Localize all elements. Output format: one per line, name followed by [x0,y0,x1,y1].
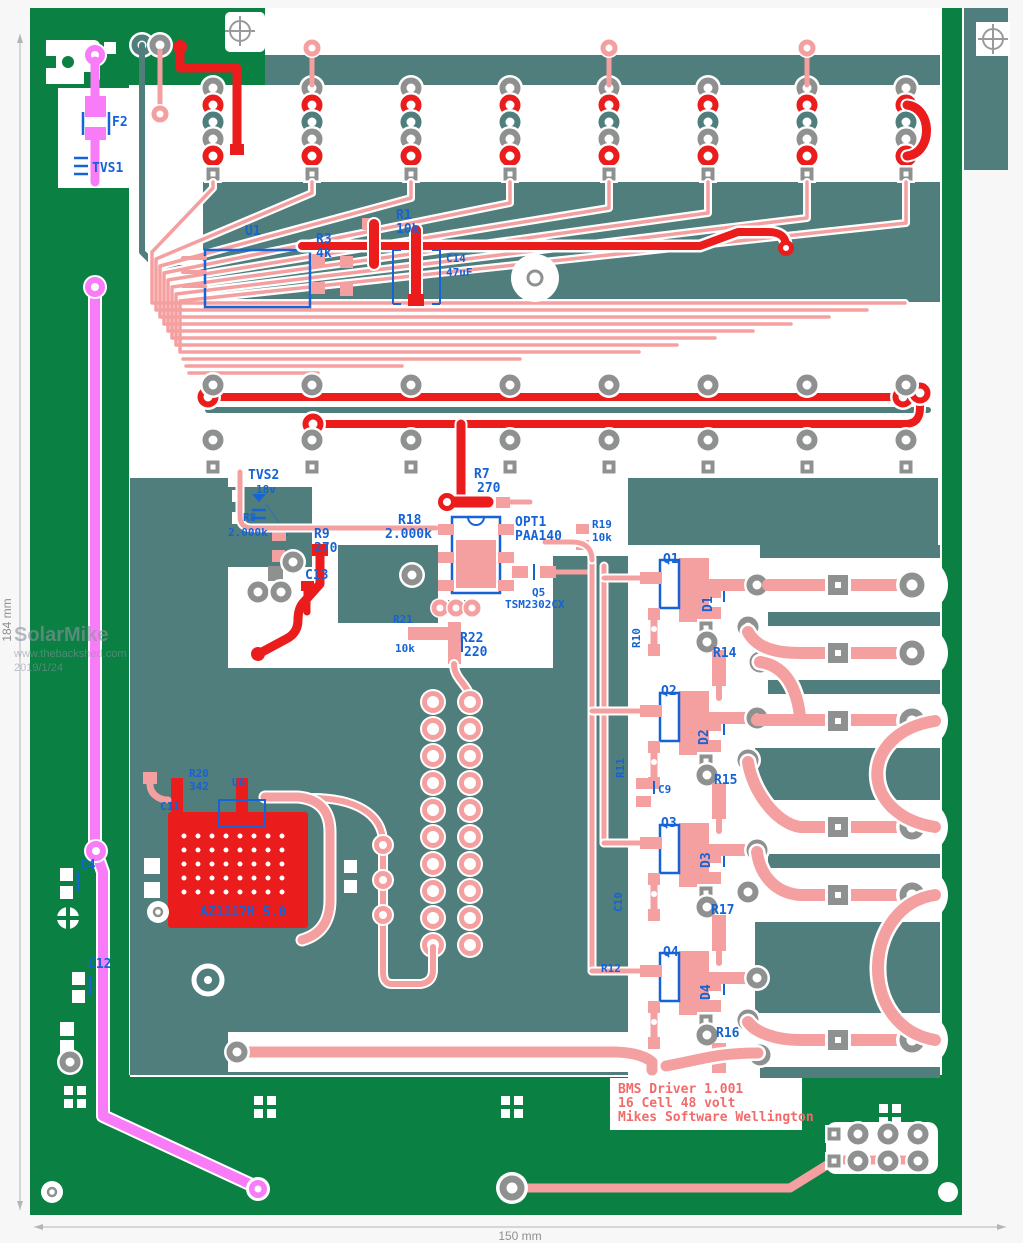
pcb-layout-image: 150 mm 184 mm [0,0,1023,1243]
title-line-3: Mikes Software Wellington [618,1110,814,1125]
label-r21: R21 [393,613,413,626]
label-d2: D2 [697,729,712,745]
label-r21-value: 10k [395,642,415,655]
label-c14-value: 47uF [446,266,473,279]
label-d1: D1 [701,596,716,612]
label-r9: R9 [314,527,330,542]
label-c11: C11 [160,800,180,813]
label-r20-value: 342 [189,780,209,793]
label-az-regulator: AZ1117H 5.0 [200,905,286,920]
label-c14: C14 [446,252,466,265]
watermark-date: 2019/1/24 [14,662,63,674]
label-r3: R3 [316,232,332,247]
label-r11: R11 [614,758,627,778]
label-d4: D4 [699,984,714,1000]
label-r16: R16 [716,1026,740,1041]
label-u6: U6 [232,776,246,789]
label-r7-value: 270 [477,481,501,496]
label-q3: Q3 [661,816,677,831]
label-c4: C4 [80,858,96,873]
watermark-name: SolarMike [14,624,108,646]
label-r19-value: 10k [592,531,612,544]
label-r8: R8 [243,511,256,524]
label-c9: C9 [658,783,671,796]
label-tvs2: TVS2 [248,468,279,483]
label-c13: C13 [305,568,328,583]
title-line-2: 16 Cell 48 volt [618,1096,735,1111]
label-opt1: OPT1 [515,515,546,530]
title-line-1: BMS Driver 1.001 [618,1082,743,1097]
label-r19: R19 [592,518,612,531]
label-r22: R22 [460,631,483,646]
label-r12: R12 [601,962,621,975]
label-q1: Q1 [663,552,679,567]
label-r1: R1 [396,208,412,223]
label-u1: U1 [245,224,261,239]
pcb-editor-canvas: 150 mm 184 mm [0,0,1023,1243]
board-width-dimension: 150 mm [498,1229,541,1243]
label-c12: C12 [88,957,111,972]
label-opt1-value: PAA140 [515,529,562,544]
label-r22-value: 220 [464,645,488,660]
label-f2: F2 [112,115,128,130]
label-tvs2-value: 18v [256,483,276,496]
label-r20: R20 [189,767,209,780]
label-r1-value: 10k [396,222,420,237]
label-r18-value: 2.000k [385,527,432,542]
label-d3: D3 [699,852,714,868]
label-q5-value: TSM2302CX [505,598,565,611]
watermark-url: www.thebackshed.com [13,648,127,660]
label-r10: R10 [630,628,643,648]
label-q2: Q2 [661,684,677,699]
label-r18: R18 [398,513,422,528]
label-c10: C10 [612,892,625,912]
label-q4: Q4 [663,945,679,960]
label-r3-value: 4k [316,246,332,261]
label-r14: R14 [713,646,737,661]
label-r17: R17 [711,903,734,918]
label-r7: R7 [474,467,490,482]
label-tvs1: TVS1 [92,161,123,176]
label-r9-value: 270 [314,541,338,556]
label-r15: R15 [714,773,737,788]
label-r8-value: 2.000k [228,526,268,539]
board-height-dimension: 184 mm [0,598,14,641]
